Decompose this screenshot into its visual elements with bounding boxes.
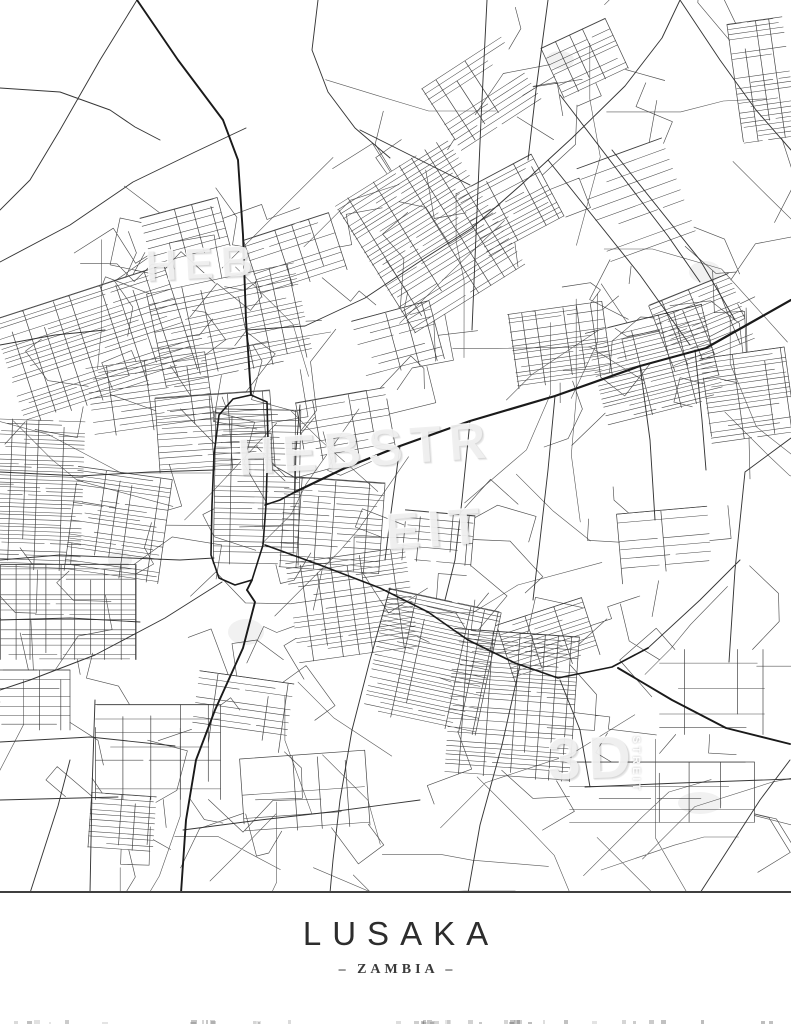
poster-title: LUSAKA <box>0 915 791 953</box>
poster-footer: LUSAKA – ZAMBIA – <box>0 893 791 1022</box>
poster-subtitle: – ZAMBIA – <box>0 962 791 978</box>
map-area: HEB HEBSTR EIT 3D STREIT <box>0 0 791 893</box>
street-map-graphic <box>0 0 791 893</box>
map-poster: HEB HEBSTR EIT 3D STREIT LUSAKA – ZAMBIA… <box>0 0 791 1024</box>
cropped-text-artifacts <box>0 1016 791 1024</box>
